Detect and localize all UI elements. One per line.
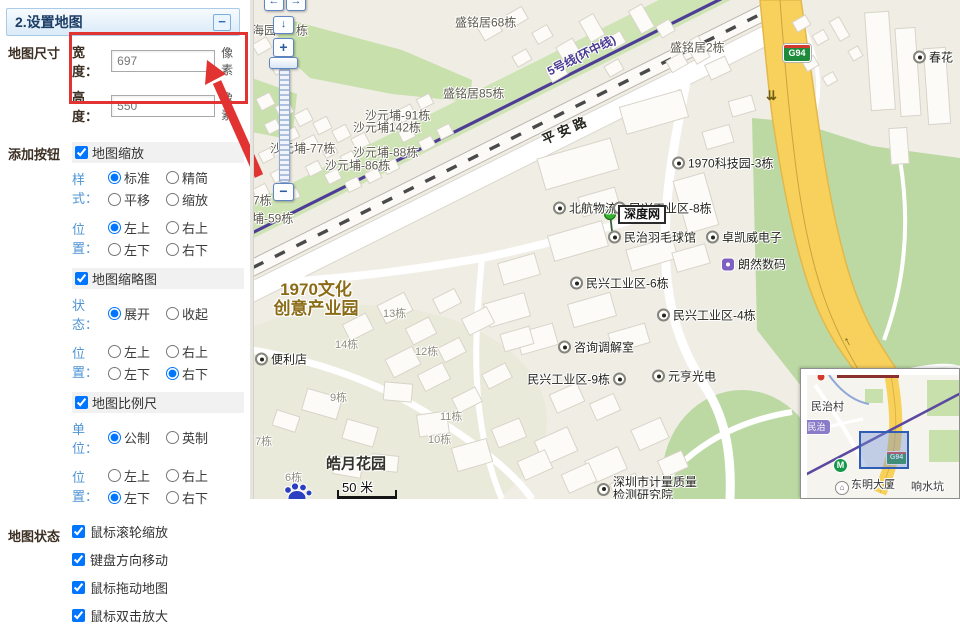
poi-text: 1970科技园-3栋	[688, 155, 773, 172]
map-poi-label: 盛铭居85栋	[443, 85, 504, 102]
map-poi-label: 9栋	[330, 389, 347, 405]
radio-input[interactable]	[166, 221, 179, 234]
map-poi-label: 14栋	[335, 336, 358, 352]
radio-option-label: 收起	[182, 304, 208, 323]
map-canvas[interactable]: 5号线(环中线) 平安路 G94 ⇊ ↑ 1970文化 创意产业园 海园栋盛铭居…	[252, 0, 960, 499]
radio-input[interactable]	[166, 367, 179, 380]
oneway-arrows-icon: ⇊	[766, 88, 774, 104]
radio-option-label: 平移	[124, 190, 150, 209]
map-settings-panel: 2.设置地图 − 地图尺寸 宽度： 像素 高度： 像素 添加按钮 地图缩放	[0, 0, 250, 499]
map-poi-label: 盛铭居2栋	[670, 39, 725, 56]
radio-option-label: 右上	[182, 342, 208, 361]
zoom-style-group: 样式： 标准精简平移缩放	[72, 168, 244, 209]
scale-unit-group: 单位： 公制英制	[72, 418, 244, 457]
radio-input[interactable]	[166, 345, 179, 358]
zoom-out-button[interactable]: −	[273, 183, 294, 201]
overview-map-checkbox[interactable]	[75, 272, 88, 285]
poi-dot-icon	[652, 370, 665, 383]
radio-option-scpos[interactable]: 左上	[108, 466, 164, 485]
radio-input[interactable]	[108, 491, 121, 504]
map-poi-label: 1970科技园-3栋	[672, 155, 773, 172]
radio-input[interactable]	[108, 193, 121, 206]
pan-left-button[interactable]: ←	[264, 0, 284, 11]
section-label-map-size: 地图尺寸	[0, 39, 72, 132]
map-poi-label: 栋	[296, 22, 308, 39]
map-poi-label: 北航物流	[553, 200, 617, 217]
map-poi-label: 13栋	[383, 305, 406, 321]
checkbox-label: 鼠标拖动地图	[90, 578, 168, 597]
poi-text: 卓凯威电子	[722, 229, 782, 246]
radio-input[interactable]	[108, 243, 121, 256]
radio-option-ovpos[interactable]: 左下	[108, 364, 164, 383]
map-poi-label: 埔-59栋	[252, 210, 293, 227]
radio-option-scpos[interactable]: 右上	[166, 466, 222, 485]
radio-option-zoompos[interactable]: 右上	[166, 218, 222, 237]
radio-option-ovpos[interactable]: 右下	[166, 364, 222, 383]
radio-option-scpos[interactable]: 左下	[108, 488, 164, 507]
state-label: 状态：	[72, 294, 108, 333]
radio-input[interactable]	[166, 243, 179, 256]
minimap-label-village: 民治村	[811, 398, 844, 414]
poi-dot-icon	[570, 277, 583, 290]
radio-option-label: 右上	[182, 466, 208, 485]
radio-option-label: 右下	[182, 240, 208, 259]
panel-divider	[250, 0, 254, 499]
map-poi-label: 深圳市计量质量检测研究院	[597, 476, 697, 499]
radio-option-ovpos[interactable]: 右上	[166, 342, 222, 361]
poi-text: 便利店	[271, 351, 307, 368]
poi-text: 栋	[296, 22, 308, 39]
radio-option-label: 精简	[182, 168, 208, 187]
position-label: 位置：	[72, 466, 108, 507]
map-state-checkbox-row[interactable]: 鼠标滚轮缩放	[72, 522, 244, 541]
checkbox-label: 键盘方向移动	[90, 550, 168, 569]
width-row: 宽度： 像素	[72, 42, 244, 80]
map-scale-label: 地图比例尺	[92, 393, 157, 412]
radio-option-zoompos[interactable]: 左上	[108, 218, 164, 237]
poi-text: 盛铭居2栋	[670, 39, 725, 56]
poi-text: 10栋	[428, 431, 451, 447]
overview-minimap[interactable]: 民治村 民治 M G94 ⌂东明大厦 响水坑	[800, 368, 960, 499]
poi-text: 朗然数码	[738, 256, 786, 273]
poi-text: 13栋	[383, 305, 406, 321]
radio-input[interactable]	[166, 307, 179, 320]
poi-dot-icon	[255, 353, 268, 366]
radio-option-scpos[interactable]: 右下	[166, 488, 222, 507]
checkbox-label: 鼠标滚轮缩放	[90, 522, 168, 541]
radio-option-scunit[interactable]: 公制	[108, 418, 164, 457]
map-state-checkbox[interactable]	[72, 581, 85, 594]
poi-text: 9栋	[330, 389, 347, 405]
map-poi-label: 10栋	[428, 431, 451, 447]
poi-text: 元亨光电	[668, 368, 716, 385]
checkbox-row-map-scale[interactable]: 地图比例尺	[72, 392, 244, 413]
poi-text: 北航物流	[569, 200, 617, 217]
minimap-label-place: 响水坑	[911, 478, 944, 494]
map-state-checkbox[interactable]	[72, 609, 85, 622]
poi-text: 沙元埔142栋	[353, 119, 421, 136]
poi-dot-icon	[613, 373, 626, 386]
poi-dot-icon	[553, 202, 566, 215]
radio-input[interactable]	[166, 431, 179, 444]
radio-input[interactable]	[108, 221, 121, 234]
radio-input[interactable]	[108, 367, 121, 380]
poi-text: 7栋	[255, 433, 272, 449]
area-label-1970-park: 1970文化 创意产业园	[260, 280, 372, 318]
radio-option-zoompos[interactable]: 右下	[166, 240, 222, 259]
poi-dot-icon	[597, 483, 610, 496]
radio-input[interactable]	[108, 171, 121, 184]
radio-option-label: 展开	[124, 304, 150, 323]
minimap-station-badge: 民治	[807, 419, 831, 435]
radio-input[interactable]	[166, 469, 179, 482]
poi-text: 皓月花园	[326, 453, 386, 474]
poi-text: 民治羽毛球馆	[624, 229, 696, 246]
poi-text: 埔-59栋	[252, 210, 293, 227]
map-poi-label: 春花	[913, 49, 953, 66]
poi-text: 7栋	[253, 192, 272, 209]
map-poi-label: 民治羽毛球馆	[608, 229, 696, 246]
poi-dot-icon	[913, 51, 926, 64]
map-state-checkbox-row[interactable]: 鼠标双击放大	[72, 606, 244, 625]
minimap-content: 民治村 民治 M G94 ⌂东明大厦 响水坑	[807, 375, 959, 498]
radio-option-label: 右下	[182, 488, 208, 507]
radio-option-label: 左下	[124, 488, 150, 507]
map-poi-label: 沙元埔142栋	[353, 119, 421, 136]
radio-input[interactable]	[166, 491, 179, 504]
scale-bar	[337, 490, 397, 499]
width-unit: 像素	[221, 44, 244, 78]
height-unit: 像素	[221, 89, 244, 123]
poi-text: 民兴工业区-9栋	[527, 371, 610, 388]
zoom-position-group: 位置： 左上右上左下右下	[72, 218, 244, 259]
map-state-checkbox-row[interactable]: 鼠标拖动地图	[72, 578, 244, 597]
radio-option-zoomstyle[interactable]: 缩放	[166, 190, 222, 209]
checkbox-label: 鼠标双击放大	[90, 606, 168, 625]
building-circle-icon: ⌂	[835, 481, 849, 495]
pan-down-button[interactable]: ↓	[273, 16, 294, 34]
poi-text: 14栋	[335, 336, 358, 352]
poi-text: 民兴工业区-6栋	[586, 275, 669, 292]
radio-option-label: 公制	[124, 428, 150, 447]
overview-position-group: 位置： 左上右上左下右下	[72, 342, 244, 383]
poi-text: 春花	[929, 49, 953, 66]
poi-dot-icon	[672, 157, 685, 170]
radio-input[interactable]	[108, 469, 121, 482]
style-label: 样式：	[72, 168, 108, 209]
poi-dot-icon	[657, 309, 670, 322]
radio-input[interactable]	[166, 171, 179, 184]
radio-option-zoomstyle[interactable]: 标准	[108, 168, 164, 187]
checkbox-row-map-zoom[interactable]: 地图缩放	[72, 142, 244, 163]
map-poi-label: 7栋	[255, 433, 272, 449]
map-poi-label: 民兴工业区-6栋	[570, 275, 669, 292]
radio-option-label: 左上	[124, 466, 150, 485]
poi-text: 咨询调解室	[574, 339, 634, 356]
map-state-checkbox[interactable]	[72, 553, 85, 566]
map-poi-label: 盛铭居68栋	[455, 14, 516, 31]
radio-option-label: 左上	[124, 342, 150, 361]
map-poi-label: 朗然数码	[721, 256, 786, 273]
map-poi-label: 7栋	[253, 192, 272, 209]
map-scale-checkbox[interactable]	[75, 396, 88, 409]
poi-app-icon	[721, 257, 735, 271]
radio-option-ovstate[interactable]: 收起	[166, 294, 222, 333]
position-label: 位置：	[72, 218, 108, 259]
zoom-slider-track[interactable]	[279, 68, 290, 183]
radio-input[interactable]	[166, 193, 179, 206]
map-logo-paw-icon	[282, 482, 316, 499]
map-zoom-label: 地图缩放	[92, 143, 144, 162]
metro-logo-icon: M	[833, 458, 848, 473]
section-label-add-buttons: 添加按钮	[0, 140, 72, 516]
radio-option-ovstate[interactable]: 展开	[108, 294, 164, 333]
radio-option-ovpos[interactable]: 左上	[108, 342, 164, 361]
overview-state-group: 状态： 展开收起	[72, 294, 244, 333]
map-poi-label: 元亨光电	[652, 368, 716, 385]
map-poi-label: 卓凯威电子	[706, 229, 782, 246]
radio-input[interactable]	[108, 307, 121, 320]
minimap-viewport-rect[interactable]	[859, 431, 909, 469]
radio-option-scunit[interactable]: 英制	[166, 418, 222, 457]
section-label-map-state: 地图状态	[0, 522, 72, 634]
poi-text: 12栋	[415, 343, 438, 359]
map-state-checkbox-row[interactable]: 键盘方向移动	[72, 550, 244, 569]
radio-option-zoompos[interactable]: 左下	[108, 240, 164, 259]
radio-option-label: 右下	[182, 364, 208, 383]
position-label: 位置：	[72, 342, 108, 383]
zoom-slider-handle[interactable]	[269, 57, 298, 69]
collapse-button[interactable]: −	[213, 14, 231, 31]
map-poi-label: 12栋	[415, 343, 438, 359]
overview-map-label: 地图缩略图	[92, 269, 157, 288]
radio-option-zoomstyle[interactable]: 平移	[108, 190, 164, 209]
scale-position-group: 位置： 左上右上左下右下	[72, 466, 244, 507]
g94-road-badge: G94	[783, 44, 811, 62]
poi-dot-icon	[706, 231, 719, 244]
map-poi-label: 皓月花园	[326, 453, 386, 474]
map-poi-label: 民兴工业区-4栋	[657, 307, 756, 324]
map-poi-label: 11栋	[440, 408, 462, 424]
map-poi-label: 沙元埔-86栋	[325, 157, 390, 174]
map-poi-label: 便利店	[255, 351, 307, 368]
poi-text: 盛铭居68栋	[455, 14, 516, 31]
pan-right-button[interactable]: →	[286, 0, 306, 11]
map-state-checkbox[interactable]	[72, 525, 85, 538]
radio-option-label: 右上	[182, 218, 208, 237]
radio-option-label: 英制	[182, 428, 208, 447]
unit-label: 单位：	[72, 418, 108, 457]
zoom-in-button[interactable]: +	[273, 38, 294, 57]
radio-option-label: 标准	[124, 168, 150, 187]
radio-option-zoomstyle[interactable]: 精简	[166, 168, 222, 187]
radio-option-label: 左下	[124, 364, 150, 383]
map-zoom-checkbox[interactable]	[75, 146, 88, 159]
height-label: 高度：	[72, 87, 109, 125]
panel-header: 2.设置地图 −	[6, 8, 240, 36]
width-label: 宽度：	[72, 42, 109, 80]
poi-dot-icon	[558, 341, 571, 354]
radio-option-label: 左下	[124, 240, 150, 259]
radio-option-label: 缩放	[182, 190, 208, 209]
poi-text: 盛铭居85栋	[443, 85, 504, 102]
height-input[interactable]	[111, 95, 215, 117]
panel-title: 2.设置地图	[15, 12, 83, 32]
checkbox-row-overview-map[interactable]: 地图缩略图	[72, 268, 244, 289]
map-poi-label: 咨询调解室	[558, 339, 634, 356]
poi-dot-icon	[608, 231, 621, 244]
radio-input[interactable]	[108, 345, 121, 358]
width-input[interactable]	[111, 50, 215, 72]
poi-text: 11栋	[440, 408, 462, 424]
marker-label-box: 深度网	[618, 205, 666, 224]
poi-text: 沙元埔-86栋	[325, 157, 390, 174]
height-row: 高度： 像素	[72, 87, 244, 125]
radio-option-label: 左上	[124, 218, 150, 237]
radio-input[interactable]	[108, 431, 121, 444]
map-poi-label: 民兴工业区-9栋	[527, 371, 626, 388]
minimap-label-building: ⌂东明大厦	[835, 476, 895, 495]
poi-text: 民兴工业区-4栋	[673, 307, 756, 324]
